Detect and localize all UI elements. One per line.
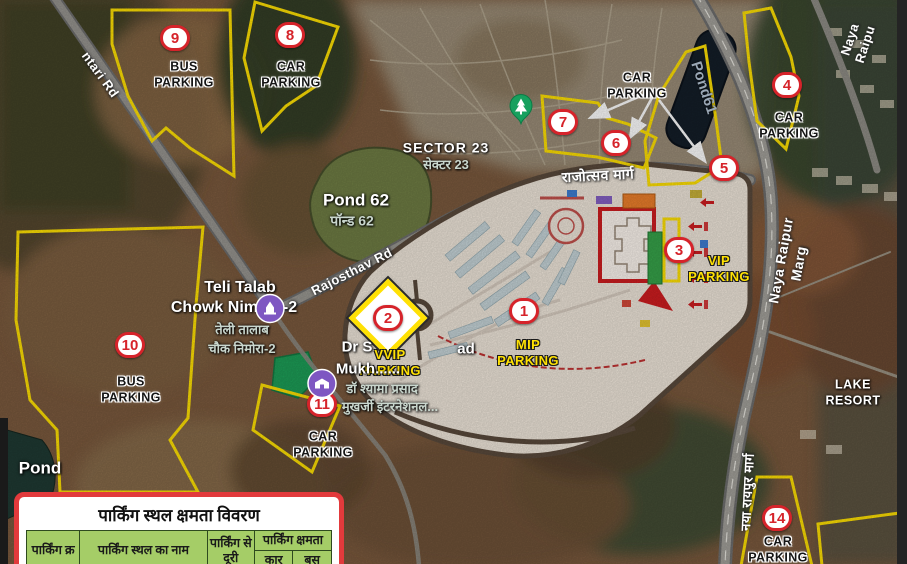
legend-title: पार्किंग स्थल क्षमता विवरण	[26, 503, 332, 526]
marker-2: 2	[373, 305, 403, 331]
legend-col-no: पार्किंग क्र	[27, 531, 80, 564]
marker-5: 5	[709, 155, 739, 181]
marker-1: 1	[509, 298, 539, 324]
marker-6: 6	[601, 130, 631, 156]
legend-col-car: कार	[254, 551, 293, 564]
satellite-basemap	[0, 0, 907, 564]
marker-8: 8	[275, 22, 305, 48]
school-icon	[307, 369, 337, 404]
marker-4: 4	[772, 72, 802, 98]
chowk-monument-icon	[255, 294, 285, 329]
marker-10: 10	[115, 332, 145, 358]
right-edge	[897, 0, 907, 564]
legend-col-name: पार्किंग स्थल का नाम	[80, 531, 207, 564]
marker-9: 9	[160, 25, 190, 51]
legend-table: पार्किंग क्र पार्किंग स्थल का नाम पार्कि…	[26, 530, 332, 564]
marker-7: 7	[548, 109, 578, 135]
legend-col-distance: पार्किंग से दूरी	[207, 531, 254, 564]
marker-14: 14	[762, 505, 792, 531]
marker-3: 3	[664, 237, 694, 263]
legend-col-bus: बस	[293, 551, 332, 564]
legend-col-capacity: पार्किंग क्षमता	[254, 531, 331, 551]
park-tree-icon	[508, 94, 534, 131]
parking-map: 1 2 3 4 5 6 7 8 9 10 11 14 BUS PARKING C…	[0, 0, 907, 564]
left-edge	[0, 418, 8, 564]
legend-box: पार्किंग स्थल क्षमता विवरण पार्किंग क्र …	[14, 492, 344, 564]
